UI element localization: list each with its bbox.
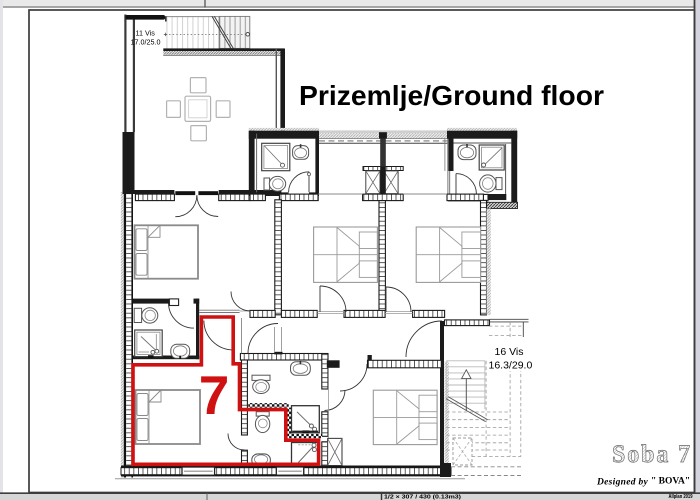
svg-text:1/2 × 307 / 430 (0.13m3): 1/2 × 307 / 430 (0.13m3) xyxy=(384,495,461,500)
svg-text:Prizemlje/Ground floor: Prizemlje/Ground floor xyxy=(299,80,604,111)
svg-text:Designed by: Designed by xyxy=(596,478,649,488)
svg-text:16.3/29.0: 16.3/29.0 xyxy=(489,359,533,371)
svg-text:16 Vis: 16 Vis xyxy=(495,346,524,358)
svg-text:Allplan 2019: Allplan 2019 xyxy=(669,494,693,500)
svg-text:" BOVA": " BOVA" xyxy=(651,477,690,487)
svg-text:Soba 7: Soba 7 xyxy=(612,441,692,468)
svg-text:7: 7 xyxy=(199,364,230,426)
svg-text:11 Vis: 11 Vis xyxy=(136,29,156,38)
svg-text:17.0/25.0: 17.0/25.0 xyxy=(131,38,161,47)
